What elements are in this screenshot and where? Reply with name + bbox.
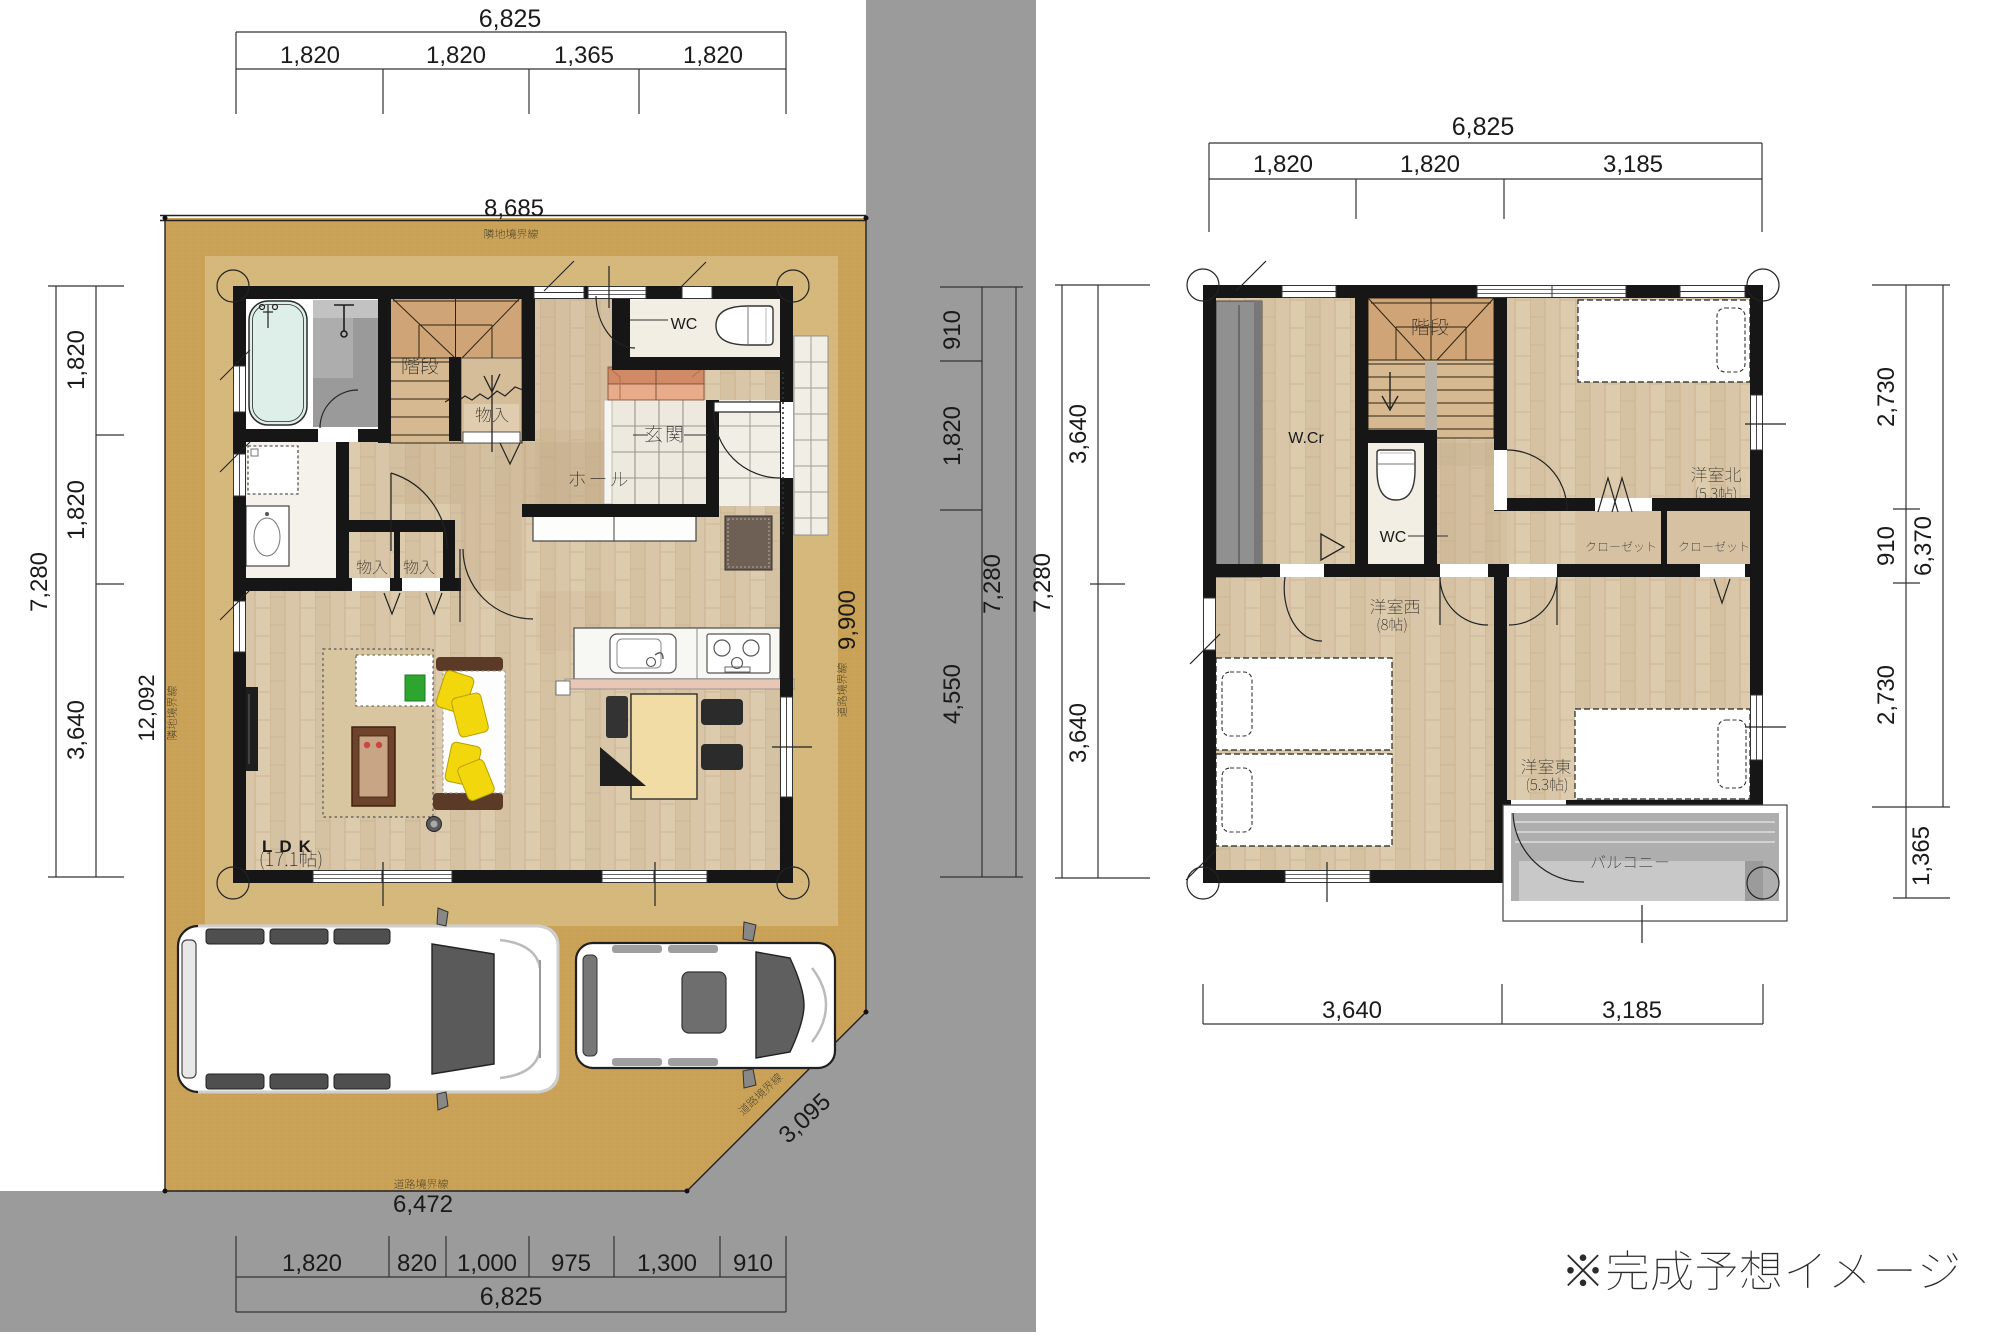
svg-text:3,640: 3,640 (1065, 703, 1092, 763)
svg-text:1,820: 1,820 (426, 42, 486, 69)
svg-text:6,825: 6,825 (479, 5, 542, 33)
svg-text:1,820: 1,820 (1253, 151, 1313, 178)
svg-text:WC: WC (1380, 529, 1407, 546)
svg-text:7,280: 7,280 (26, 552, 53, 612)
svg-text:820: 820 (397, 1250, 437, 1277)
svg-text:4,550: 4,550 (939, 664, 966, 724)
svg-text:1,820: 1,820 (280, 42, 340, 69)
svg-text:W.Cr: W.Cr (1288, 430, 1324, 447)
svg-text:3,185: 3,185 (1602, 997, 1662, 1024)
svg-text:LDK: LDK (262, 837, 318, 856)
svg-text:6,825: 6,825 (480, 1283, 543, 1311)
svg-text:1,365: 1,365 (1908, 826, 1935, 886)
svg-text:910: 910 (939, 310, 966, 350)
svg-text:2,730: 2,730 (1873, 665, 1900, 725)
svg-text:1,820: 1,820 (683, 42, 743, 69)
svg-text:WC: WC (671, 316, 698, 333)
svg-text:7,280: 7,280 (1029, 553, 1056, 613)
svg-text:1,820: 1,820 (939, 406, 966, 466)
svg-text:7,280: 7,280 (979, 554, 1006, 614)
svg-text:3,185: 3,185 (1603, 151, 1663, 178)
svg-text:1,820: 1,820 (1400, 151, 1460, 178)
svg-text:910: 910 (733, 1250, 773, 1277)
svg-text:3,640: 3,640 (1065, 404, 1092, 464)
svg-text:12,092: 12,092 (134, 674, 159, 741)
svg-text:3,640: 3,640 (63, 700, 90, 760)
svg-text:1,300: 1,300 (637, 1250, 697, 1277)
svg-text:9,900: 9,900 (834, 590, 861, 650)
svg-text:1,365: 1,365 (554, 42, 614, 69)
svg-text:2,730: 2,730 (1873, 367, 1900, 427)
svg-text:975: 975 (551, 1250, 591, 1277)
svg-text:6,825: 6,825 (1452, 113, 1515, 141)
svg-text:6,472: 6,472 (393, 1191, 453, 1218)
svg-text:8,685: 8,685 (484, 195, 544, 222)
svg-text:1,820: 1,820 (63, 330, 90, 390)
svg-text:6,370: 6,370 (1910, 516, 1937, 576)
svg-text:1,820: 1,820 (282, 1250, 342, 1277)
svg-text:910: 910 (1873, 526, 1900, 566)
svg-text:3,640: 3,640 (1322, 997, 1382, 1024)
svg-text:1,820: 1,820 (63, 480, 90, 540)
svg-text:1,000: 1,000 (457, 1250, 517, 1277)
